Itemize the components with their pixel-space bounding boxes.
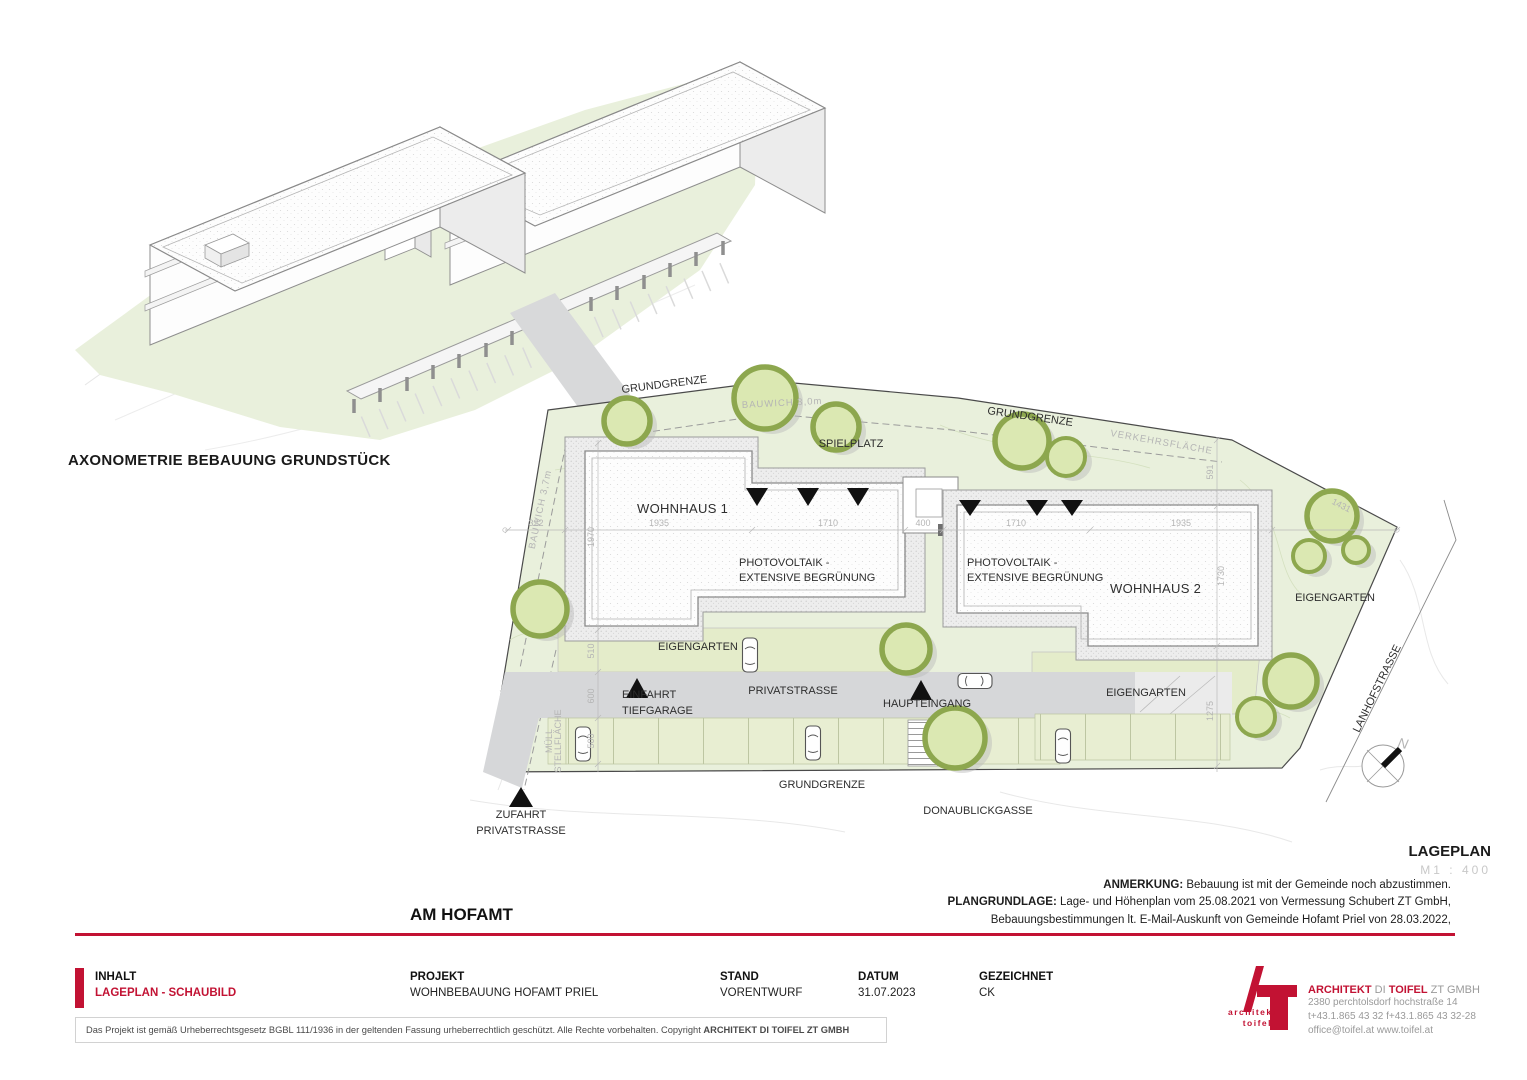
svg-text:500: 500 xyxy=(586,733,596,748)
svg-text:1730: 1730 xyxy=(1216,566,1226,586)
anmerkung-label: ANMERKUNG: xyxy=(1103,879,1183,891)
copyright-text: Das Projekt ist gemäß Urheberrechtsgeset… xyxy=(86,1025,701,1035)
label-pv2-line1: PHOTOVOLTAIK - xyxy=(967,557,1058,569)
projekt-label: PROJEKT xyxy=(410,971,598,983)
plan-sheet: AXONOMETRIE BEBAUUNG GRUNDSTÜCK xyxy=(0,0,1527,1080)
label-eigengarten-2: EIGENGARTEN xyxy=(1106,687,1186,699)
label-zufahrt-line1: ZUFAHRT xyxy=(496,809,547,821)
svg-text:1710: 1710 xyxy=(818,518,838,528)
stand-value: VORENTWURF xyxy=(720,987,802,999)
logo-text-line1: architekt xyxy=(1228,1007,1272,1018)
divider-rule xyxy=(75,933,1455,936)
svg-text:1935: 1935 xyxy=(1171,518,1191,528)
north-arrow: N xyxy=(1362,734,1410,787)
copyright-owner: ARCHITEKT DI TOIFEL ZT GMBH xyxy=(703,1025,849,1035)
svg-text:510: 510 xyxy=(586,643,596,658)
label-wohnhaus-2: WOHNHAUS 2 xyxy=(1110,581,1201,596)
label-einfahrt-line2: TIEFGARAGE xyxy=(622,705,693,717)
architect-name-mid: DI xyxy=(1372,984,1389,996)
note-plangrundlage: PLANGRUNDLAGE: Lage- und Höhenplan vom 2… xyxy=(948,894,1451,911)
label-donaublickgasse: DONAUBLICKGASSE xyxy=(923,805,1032,817)
gezeichnet-label: GEZEICHNET xyxy=(979,971,1053,983)
titleblock-gezeichnet: GEZEICHNET CK xyxy=(979,971,1053,999)
note-anmerkung: ANMERKUNG: Bebauung ist mit der Gemeinde… xyxy=(948,877,1451,894)
north-label: N xyxy=(1396,734,1410,752)
titleblock-datum: DATUM 31.07.2023 xyxy=(858,971,916,999)
label-pv1-line2: EXTENSIVE BEGRÜNUNG xyxy=(739,572,875,584)
svg-text:1710: 1710 xyxy=(1006,518,1026,528)
architect-name-bold1: ARCHITEKT xyxy=(1308,984,1372,996)
inhalt-label: INHALT xyxy=(95,971,236,983)
titleblock-inhalt: INHALT LAGEPLAN - SCHAUBILD xyxy=(95,971,236,999)
label-spielplatz: SPIELPLATZ xyxy=(819,438,884,450)
architect-logo-text: architekt toifel xyxy=(1228,1007,1272,1029)
label-pv1-line1: PHOTOVOLTAIK - xyxy=(739,557,830,569)
architect-address: 2380 perchtolsdorf hochstraße 14 xyxy=(1308,996,1480,1010)
label-einfahrt-line1: EINFAHRT xyxy=(622,689,676,701)
svg-text:591: 591 xyxy=(1205,464,1215,479)
plangrundlage-text: Lage- und Höhenplan vom 25.08.2021 von V… xyxy=(1057,896,1451,908)
architect-phone: t+43.1.865 43 32 f+43.1.865 43 32-28 xyxy=(1308,1010,1480,1024)
architect-web: office@toifel.at www.toifel.at xyxy=(1308,1024,1480,1038)
svg-text:400: 400 xyxy=(915,518,930,528)
parking-strips xyxy=(548,714,1230,764)
architect-name-bold2: TOIFEL xyxy=(1389,984,1428,996)
architect-name-rest: ZT GMBH xyxy=(1428,984,1480,996)
label-privatstrasse: PRIVATSTRASSE xyxy=(748,685,837,697)
svg-text:1935: 1935 xyxy=(649,518,669,528)
datum-value: 31.07.2023 xyxy=(858,987,916,999)
label-eigengarten-1: EIGENGARTEN xyxy=(658,641,738,653)
logo-text-line2: toifel xyxy=(1228,1018,1272,1029)
label-pv2-line2: EXTENSIVE BEGRÜNUNG xyxy=(967,572,1103,584)
label-muell-line2: STELLFLÄCHE xyxy=(553,709,563,772)
stand-label: STAND xyxy=(720,971,802,983)
notes-block: ANMERKUNG: Bebauung ist mit der Gemeinde… xyxy=(948,877,1451,929)
inhalt-value: LAGEPLAN - SCHAUBILD xyxy=(95,987,236,999)
site-plan: 322 1935 1710 400 1710 1935 1970 510 600… xyxy=(470,350,1527,870)
axonometric-caption: AXONOMETRIE BEBAUUNG GRUNDSTÜCK xyxy=(68,452,391,469)
inhalt-accent-bar xyxy=(75,968,84,1008)
plangrundlage-text2: Bebauungsbestimmungen lt. E-Mail-Auskunf… xyxy=(991,914,1451,926)
titleblock-stand: STAND VORENTWURF xyxy=(720,971,802,999)
wohnhaus-1-footprint xyxy=(565,437,925,641)
titleblock-projekt: PROJEKT WOHNBEBAUUNG HOFAMT PRIEL xyxy=(410,971,598,999)
project-title: AM HOFAMT xyxy=(410,905,513,925)
note-plangrundlage-2: Bebauungsbestimmungen lt. E-Mail-Auskunf… xyxy=(948,912,1451,929)
legend-scale: M1 : 400 xyxy=(1409,863,1492,877)
svg-text:600: 600 xyxy=(586,688,596,703)
label-eigengarten-right: EIGENGARTEN xyxy=(1295,592,1375,604)
architect-name: ARCHITEKT DI TOIFEL ZT GMBH xyxy=(1308,984,1480,996)
label-grundgrenze-bottom: GRUNDGRENZE xyxy=(779,779,865,791)
legend-title: LAGEPLAN xyxy=(1409,843,1492,860)
copyright-box: Das Projekt ist gemäß Urheberrechtsgeset… xyxy=(75,1017,887,1043)
label-lanhofstrasse: LANHOFSTRASSE xyxy=(1351,643,1404,735)
plangrundlage-label: PLANGRUNDLAGE: xyxy=(948,896,1057,908)
anmerkung-text: Bebauung ist mit der Gemeinde noch abzus… xyxy=(1183,879,1451,891)
svg-text:1275: 1275 xyxy=(1205,701,1215,721)
label-zufahrt-line2: PRIVATSTRASSE xyxy=(476,825,565,837)
datum-label: DATUM xyxy=(858,971,916,983)
label-haupteingang: HAUPTEINGANG xyxy=(883,698,971,710)
projekt-value: WOHNBEBAUUNG HOFAMT PRIEL xyxy=(410,987,598,999)
svg-text:1970: 1970 xyxy=(586,527,596,547)
gezeichnet-value: CK xyxy=(979,987,1053,999)
label-wohnhaus-1: WOHNHAUS 1 xyxy=(637,501,728,516)
architect-info: ARCHITEKT DI TOIFEL ZT GMBH 2380 perchto… xyxy=(1308,984,1480,1038)
legend-block: LAGEPLAN M1 : 400 xyxy=(1409,843,1492,877)
